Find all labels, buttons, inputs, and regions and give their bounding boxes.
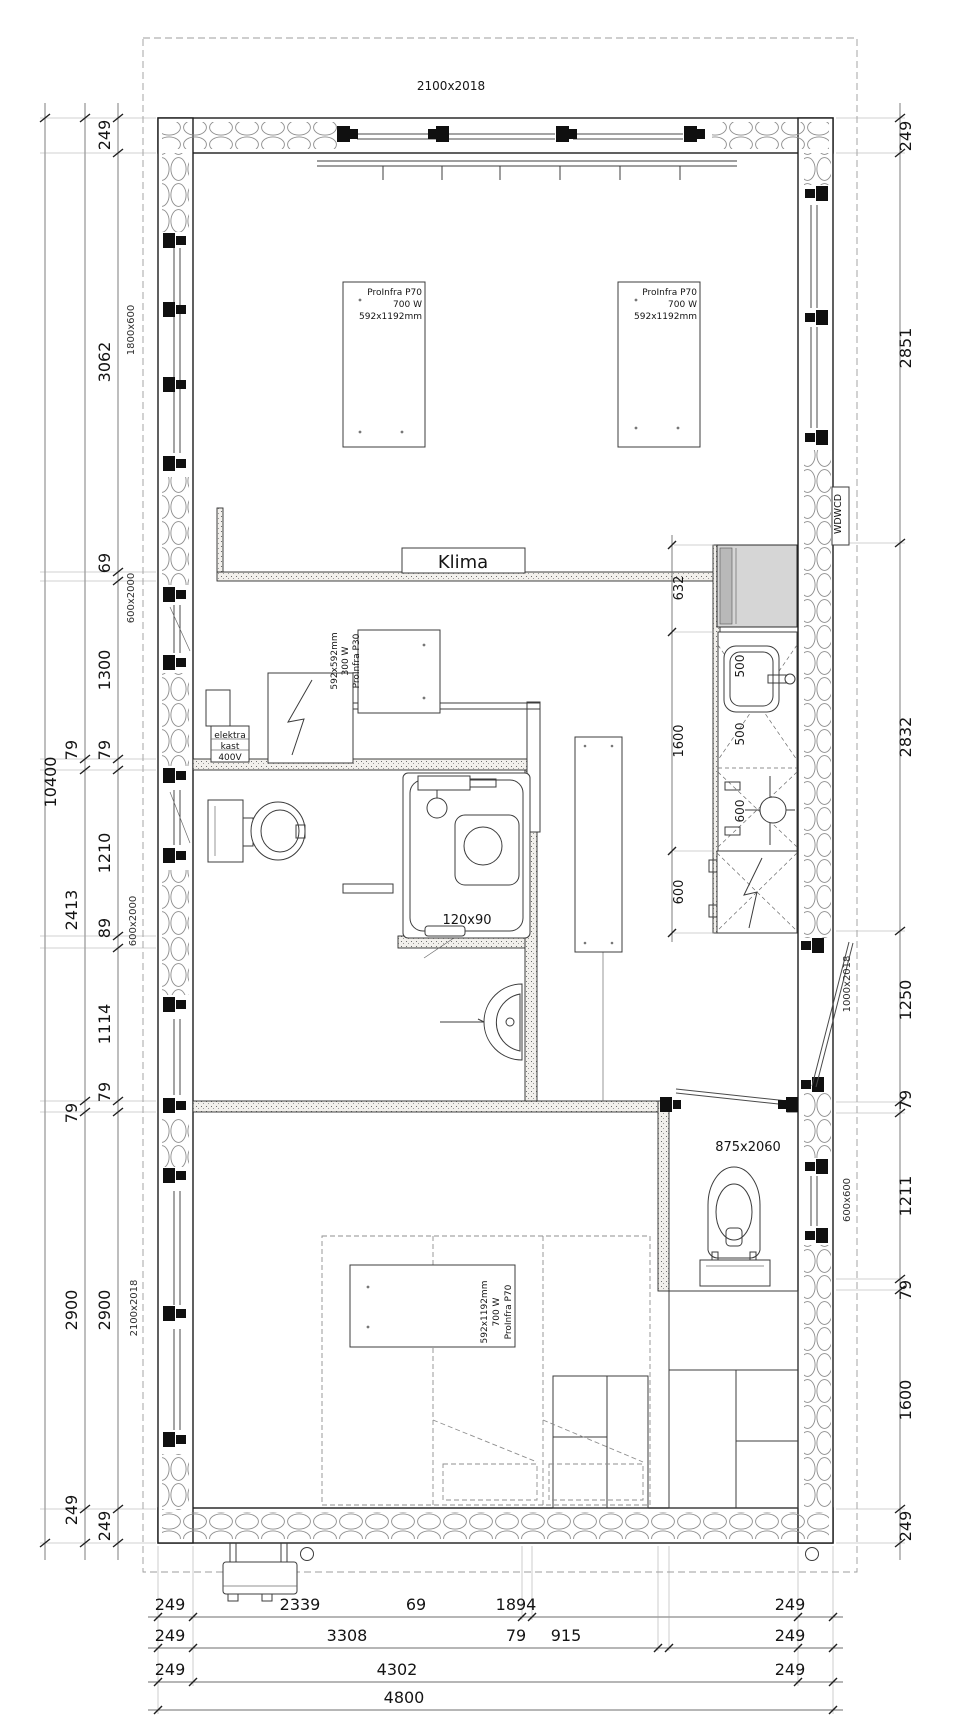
shower-symbol <box>343 773 530 938</box>
svg-text:700 W: 700 W <box>393 300 422 310</box>
insulation <box>804 1245 831 1508</box>
window-left-600x2000-a <box>159 585 192 673</box>
window-top-2100x2018 <box>317 119 737 180</box>
dim-label: 69 <box>406 1595 426 1614</box>
dim-label: 3062 <box>95 342 114 383</box>
dim-label: 249 <box>155 1660 186 1679</box>
footing-left <box>301 1548 314 1561</box>
dim-label: 69 <box>95 553 114 573</box>
dim-label: 2339 <box>280 1595 321 1614</box>
dim-label: 79 <box>62 1103 81 1123</box>
wdwcd-label: WDWCD <box>832 487 849 545</box>
svg-text:ProInfra P70: ProInfra P70 <box>367 288 422 298</box>
dim-label: 600 <box>672 880 687 905</box>
dim-label: 79 <box>896 1090 915 1110</box>
heating-panel-p30 <box>358 630 440 713</box>
klima-label: Klima <box>438 552 488 573</box>
table-symbol <box>575 737 622 952</box>
insulation <box>162 153 189 232</box>
boiler-unit <box>268 673 353 763</box>
dim-label: 1600 <box>896 1380 915 1421</box>
dim-label: 2413 <box>62 890 81 931</box>
dim-label: 632 <box>672 576 687 601</box>
dim-label: 89 <box>95 918 114 938</box>
toilet-symbol-2 <box>700 1167 770 1286</box>
dim-label-total-height: 10400 <box>41 757 60 808</box>
shower-size-label: 120x90 <box>442 913 491 928</box>
insulation <box>162 122 337 149</box>
window-label: 2100x2018 <box>129 1280 140 1337</box>
wc-door-label: 875x2060 <box>715 1140 781 1155</box>
dim-label: 500 <box>733 723 747 746</box>
dim-label: 2851 <box>896 328 915 369</box>
window-label: 600x2000 <box>126 573 137 623</box>
svg-text:ProInfra P70: ProInfra P70 <box>504 1284 514 1339</box>
elektra-label: elektra <box>214 731 246 741</box>
elektra-label: kast <box>221 742 240 752</box>
dim-label: 249 <box>775 1626 806 1645</box>
dim-label: 249 <box>155 1626 186 1645</box>
window-label: 600x600 <box>842 1178 853 1222</box>
dim-label: 249 <box>62 1495 81 1526</box>
floor-plan-drawing: 249 3062 69 1300 79 1210 89 1114 79 2900… <box>0 0 960 1731</box>
dim-label: 1600 <box>672 724 687 757</box>
floor-plan-page: 249 3062 69 1300 79 1210 89 1114 79 2900… <box>0 0 960 1731</box>
window-left-2100x2018 <box>159 1167 192 1454</box>
dim-label: 249 <box>775 1595 806 1614</box>
dim-label: 600 <box>733 800 747 823</box>
svg-text:ProInfra P70: ProInfra P70 <box>642 288 697 298</box>
dim-label: 1894 <box>496 1595 537 1614</box>
window-label-top: 2100x2018 <box>417 79 485 93</box>
insulation <box>712 122 829 149</box>
dim-label: 1211 <box>896 1176 915 1217</box>
storage-units <box>553 1291 798 1508</box>
dim-label: 2832 <box>896 717 915 758</box>
insulation <box>162 673 189 766</box>
window-label: 600x2000 <box>128 896 139 946</box>
svg-text:WDWCD: WDWCD <box>833 494 844 534</box>
dim-label: 1210 <box>95 833 114 874</box>
window-label: 1800x600 <box>126 305 137 355</box>
door-label: 1000x2018 <box>842 956 853 1013</box>
dim-label: 249 <box>896 121 915 152</box>
wc-room <box>660 1089 798 1286</box>
washbasin-symbol <box>440 984 522 1060</box>
boiler2-symbol <box>709 851 797 933</box>
svg-text:ProInfra P30: ProInfra P30 <box>352 633 362 688</box>
insulation <box>804 153 831 185</box>
window-right-upper <box>799 185 832 450</box>
heating-panel-p70-bottom <box>350 1265 515 1347</box>
dim-label: 3308 <box>327 1626 368 1645</box>
dim-label: 249 <box>896 1511 915 1542</box>
insulation <box>804 1090 831 1158</box>
entry-platform <box>223 1543 297 1601</box>
svg-text:592x1192mm: 592x1192mm <box>634 312 697 322</box>
dim-label: 1114 <box>95 1004 114 1045</box>
dim-label: 4302 <box>377 1660 418 1679</box>
svg-text:300 W: 300 W <box>341 646 351 675</box>
window-right-600x600 <box>799 1158 832 1245</box>
dim-label: 249 <box>95 1511 114 1542</box>
kitchen-block <box>709 545 797 933</box>
dim-label-total-width: 4800 <box>384 1688 425 1707</box>
insulation <box>162 1512 829 1539</box>
toilet-symbol-1 <box>208 800 305 862</box>
dim-label: 249 <box>775 1660 806 1679</box>
insulation <box>162 870 189 995</box>
elektra-label: 400V <box>218 753 242 763</box>
dim-label: 249 <box>155 1595 186 1614</box>
svg-text:700 W: 700 W <box>668 300 697 310</box>
svg-text:592x1192mm: 592x1192mm <box>480 1281 490 1344</box>
window-left-1800x600 <box>159 232 192 477</box>
svg-text:592x1192mm: 592x1192mm <box>359 312 422 322</box>
dim-label: 79 <box>506 1626 526 1645</box>
dim-label: 1250 <box>896 980 915 1021</box>
dim-label: 79 <box>95 1082 114 1102</box>
window-left-c <box>159 995 192 1119</box>
svg-text:700 W: 700 W <box>492 1297 502 1326</box>
dim-label: 79 <box>95 740 114 760</box>
footing-right <box>806 1548 819 1561</box>
insulation <box>804 450 831 938</box>
dim-label: 915 <box>551 1626 582 1645</box>
dim-label: 79 <box>896 1280 915 1300</box>
insulation <box>162 1454 189 1510</box>
dim-label: 79 <box>62 740 81 760</box>
dim-label: 2900 <box>95 1290 114 1331</box>
dim-label: 2900 <box>62 1290 81 1331</box>
dim-label: 1300 <box>95 650 114 691</box>
insulation <box>162 477 189 585</box>
svg-text:592x592mm: 592x592mm <box>330 632 340 689</box>
insulation <box>162 1119 189 1167</box>
dim-label: 249 <box>95 120 114 151</box>
window-left-600x2000-b <box>159 766 192 870</box>
dim-label: 500 <box>733 655 747 678</box>
